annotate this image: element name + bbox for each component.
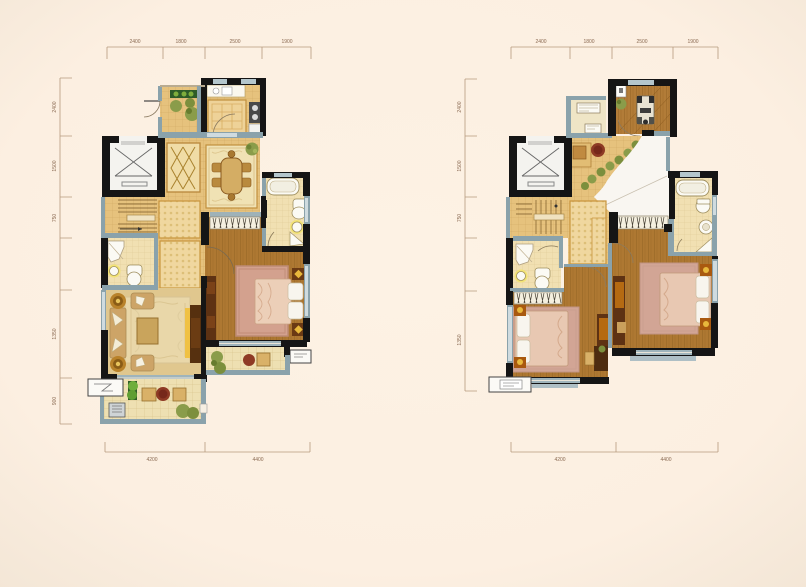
svg-text:1800: 1800 [175, 39, 186, 45]
svg-text:4400: 4400 [660, 457, 671, 463]
svg-text:1900: 1900 [687, 39, 698, 45]
svg-text:1800: 1800 [583, 39, 594, 45]
svg-text:1900: 1900 [281, 39, 292, 45]
svg-text:4200: 4200 [146, 457, 157, 463]
svg-text:2400: 2400 [129, 39, 140, 45]
svg-text:2500: 2500 [229, 39, 240, 45]
svg-text:1500: 1500 [457, 160, 463, 171]
svg-text:750: 750 [52, 214, 58, 223]
svg-text:750: 750 [457, 214, 463, 223]
svg-text:900: 900 [52, 397, 58, 406]
svg-text:2500: 2500 [636, 39, 647, 45]
svg-text:4200: 4200 [554, 457, 565, 463]
svg-text:2400: 2400 [52, 101, 58, 112]
svg-text:2400: 2400 [457, 101, 463, 112]
svg-text:1350: 1350 [457, 334, 463, 345]
svg-text:1350: 1350 [52, 328, 58, 339]
svg-text:1500: 1500 [52, 160, 58, 171]
svg-text:4400: 4400 [252, 457, 263, 463]
svg-text:2400: 2400 [535, 39, 546, 45]
